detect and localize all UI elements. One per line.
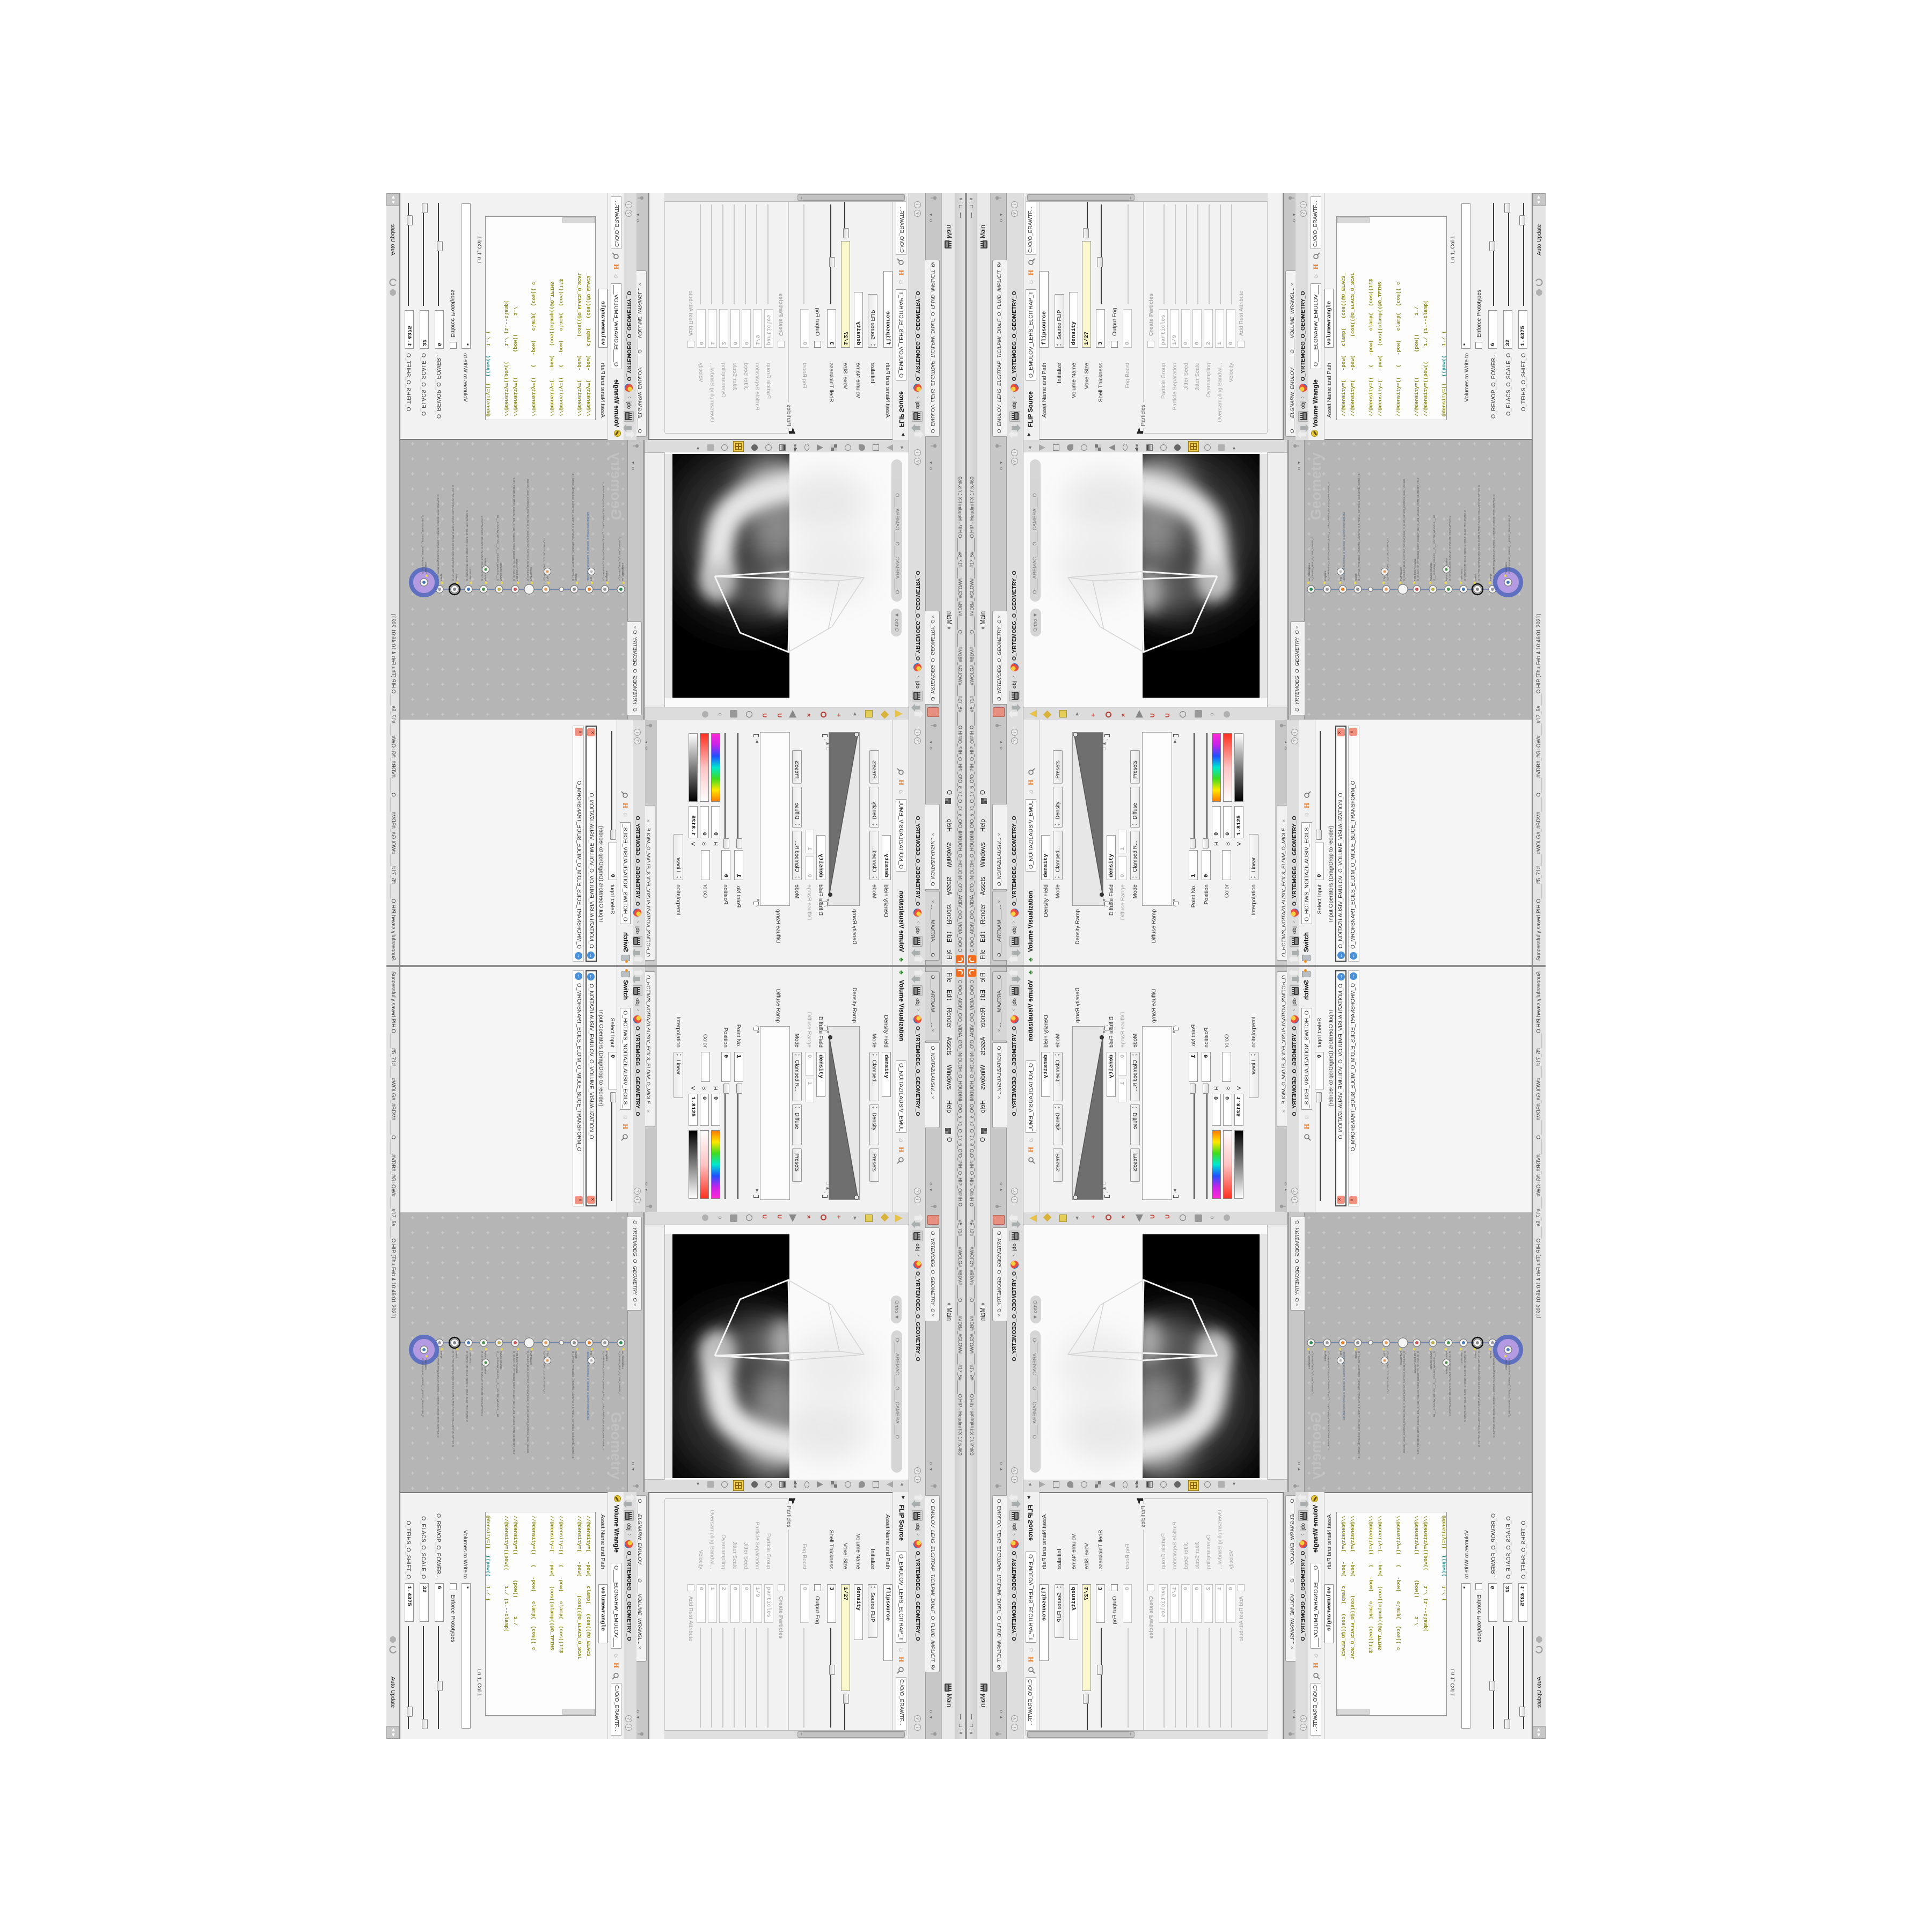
- svg-text:File: File: [1340, 576, 1342, 581]
- svg-text:an_CubeSphere: an_CubeSphere: [1308, 562, 1311, 581]
- svg-text:Switch: Switch: [1355, 573, 1357, 581]
- svg-text:O_EMULOV_LEHS_ELCITRAP_TICILPM: O_EMULOV_LEHS_ELCITRAP_TICILPMI_DIULF_O_…: [526, 1351, 529, 1453]
- svg-text:PolyWire: PolyWire: [1324, 1351, 1327, 1362]
- svg-text:O_MROFSNART_TLUSER_O_RESULT_TR: O_MROFSNART_TLUSER_O_RESULT_TRANSFORM_O: [1508, 1358, 1511, 1417]
- svg-text:O_EMARFERIW_NOGYLOP_EREHPS_EBU: O_EMARFERIW_NOGYLOP_EREHPS_EBUC_O_CUBE_S…: [1327, 1351, 1330, 1450]
- svg-text:Switch: Switch: [1474, 573, 1477, 581]
- svg-text:File: File: [590, 576, 592, 581]
- svg-text:Transform: Transform: [425, 1358, 427, 1370]
- svg-text:O_HCTIWS_NOITAZILAUSIV_ECILS_E: O_HCTIWS_NOITAZILAUSIV_ECILS_ELDIM_O_MID…: [1477, 1351, 1480, 1447]
- svg-text:Switch: Switch: [455, 1351, 458, 1359]
- svg-text:O_EREHPS_EBUC_O_CUBE_SPHERE_O: O_EREHPS_EBUC_O_CUBE_SPHERE_O: [618, 1351, 621, 1395]
- svg-text:O_EMULOV_LEHS_ELCITRAP_TICILPM: O_EMULOV_LEHS_ELCITRAP_TICILPMI_DIULF_O_…: [526, 479, 529, 581]
- svg-text:O_ECAFRUS_HTIW_EMULOV_EGREM_O_: O_ECAFRUS_HTIW_EMULOV_EGREM_O_MERGE_VOLU…: [1492, 1351, 1495, 1438]
- svg-text:Transform: Transform: [1505, 562, 1507, 574]
- svg-text:O_MROFSNART_ECILS_ELDIM_O_MIDL: O_MROFSNART_ECILS_ELDIM_O_MIDLE_SLICE_TR…: [1463, 1351, 1466, 1422]
- svg-text:O_MROFSNART_TLUSER_O_RESULT_TR: O_MROFSNART_TLUSER_O_RESULT_TRANSFORM_O: [1508, 515, 1511, 574]
- svg-text:Clip: Clip: [546, 1351, 549, 1356]
- svg-text:File: File: [590, 1351, 592, 1356]
- svg-text:Switch: Switch: [1355, 1351, 1357, 1359]
- svg-text:Volume Wrangle: Volume Wrangle: [500, 562, 502, 581]
- svg-text:O_MROFSNART_ECILS_ELDIM_O_MIDL: O_MROFSNART_ECILS_ELDIM_O_MIDLE_SLICE_TR…: [466, 510, 469, 581]
- svg-text:O___ELGNARW_EMULOV___O___VOLUM: O___ELGNARW_EMULOV___O___VOLUME_WRANGLE_…: [496, 515, 499, 581]
- svg-text:FLIP Source: FLIP Source: [1400, 567, 1402, 581]
- svg-text:FLIP Source: FLIP Source: [1400, 1351, 1402, 1365]
- svg-text:Transform: Transform: [1505, 1358, 1507, 1370]
- svg-text:O___ELGNARW_EMULOV___O___VOLUM: O___ELGNARW_EMULOV___O___VOLUME_WRANGLE_…: [1433, 1351, 1436, 1417]
- svg-text:Transform: Transform: [425, 562, 427, 574]
- svg-text:Merge: Merge: [1489, 574, 1492, 581]
- svg-text:O_EREHPS_EBUC_O_CUBE_SPHERE_O: O_EREHPS_EBUC_O_CUBE_SPHERE_O: [618, 537, 621, 581]
- svg-text:O_MROFSNART_ECILS_ELDIM_O_MIDL: O_MROFSNART_ECILS_ELDIM_O_MIDLE_SLICE_TR…: [466, 1351, 469, 1422]
- svg-text:O_ECAFRUS_HTIW_EMULOV_EGREM_O_: O_ECAFRUS_HTIW_EMULOV_EGREM_O_MERGE_VOLU…: [437, 1351, 440, 1438]
- svg-text:VDB from Polygons: VDB from Polygons: [516, 1351, 518, 1373]
- svg-text:PolyWire: PolyWire: [605, 1351, 608, 1362]
- svg-text:O_EMULOV_LEHS_ELCITRAP_TICILPM: O_EMULOV_LEHS_ELCITRAP_TICILPMI_DIULF_O_…: [1403, 479, 1406, 581]
- svg-text:PolyWire: PolyWire: [605, 570, 608, 581]
- svg-text:Merge: Merge: [1489, 1351, 1492, 1358]
- svg-text:O_MROFSNART_TLUSER_O_RESULT_TR: O_MROFSNART_TLUSER_O_RESULT_TRANSFORM_O: [421, 515, 424, 574]
- svg-text:an_CubeSphere: an_CubeSphere: [621, 1351, 624, 1370]
- svg-text:PolyWire: PolyWire: [1324, 570, 1327, 581]
- svg-text:Switch: Switch: [575, 1351, 577, 1359]
- svg-text:Switch: Switch: [455, 573, 458, 581]
- svg-text:an_CubeSphere: an_CubeSphere: [621, 562, 624, 581]
- svg-text:O_SNOGYLOP_YRTEMOEG_MORF_EMULO: O_SNOGYLOP_YRTEMOEG_MORF_EMULOV_BDV_O_VD…: [1417, 478, 1419, 581]
- svg-text:O_HCTIWS_NOITAZILAUSIV_ECILS_E: O_HCTIWS_NOITAZILAUSIV_ECILS_ELDIM_O_MID…: [1477, 485, 1480, 581]
- svg-text:Clip: Clip: [546, 576, 549, 581]
- svg-text:O_MROFSNART_ECILS_ELDIM_O_MIDL: O_MROFSNART_ECILS_ELDIM_O_MIDLE_SLICE_TR…: [1463, 510, 1466, 581]
- svg-text:O_EMULOV_LEHS_ELCITRAP_TICILPM: O_EMULOV_LEHS_ELCITRAP_TICILPMI_DIULF_O_…: [1403, 1351, 1406, 1453]
- svg-text:Volume Wrangle: Volume Wrangle: [1430, 562, 1432, 581]
- svg-text:Volume Wrangle: Volume Wrangle: [1430, 1351, 1432, 1370]
- svg-text:Switch: Switch: [1474, 1351, 1477, 1359]
- svg-text:O_ECAFRUS_HTIW_EMULOV_EGREM_O_: O_ECAFRUS_HTIW_EMULOV_EGREM_O_MERGE_VOLU…: [437, 494, 440, 581]
- svg-text:Switch: Switch: [575, 573, 577, 581]
- svg-text:O_EMARFERIW_NOGYLOP_EREHPS_EBU: O_EMARFERIW_NOGYLOP_EREHPS_EBUC_O_CUBE_S…: [1327, 482, 1330, 581]
- svg-text:FLIP Source: FLIP Source: [530, 1351, 532, 1365]
- svg-text:O_ECAFRUS_HTIW_EMULOV_EGREM_O_: O_ECAFRUS_HTIW_EMULOV_EGREM_O_MERGE_VOLU…: [1492, 494, 1495, 581]
- svg-text:O_EREHPS_EBUC_O_CUBE_SPHERE_O: O_EREHPS_EBUC_O_CUBE_SPHERE_O: [1311, 537, 1314, 581]
- svg-text:Transform: Transform: [1460, 1351, 1463, 1363]
- svg-text:FLIP Source: FLIP Source: [530, 567, 532, 581]
- svg-text:O_HCTIWS_YRTEMOEG_LANRETXE_LAN: O_HCTIWS_YRTEMOEG_LANRETXE_LANRETNI_O_IN…: [572, 1351, 574, 1459]
- svg-text:O___ELGNARW_EMULOV___O___VOLUM: O___ELGNARW_EMULOV___O___VOLUME_WRANGLE_…: [496, 1351, 499, 1417]
- svg-text:Transform: Transform: [469, 569, 472, 581]
- svg-text:Transform: Transform: [469, 1351, 472, 1363]
- svg-text:Volume Wrangle: Volume Wrangle: [500, 1351, 502, 1370]
- svg-text:Transform: Transform: [1460, 569, 1463, 581]
- svg-text:Clip: Clip: [1383, 1351, 1386, 1356]
- svg-text:Geometry: Geometry: [1308, 452, 1324, 520]
- svg-text:Merge: Merge: [440, 574, 443, 581]
- svg-text:Geometry: Geometry: [1308, 1412, 1324, 1480]
- svg-text:O_SNOGYLOP_YRTEMOEG_MORF_EMULO: O_SNOGYLOP_YRTEMOEG_MORF_EMULOV_BDV_O_VD…: [513, 1351, 515, 1454]
- svg-text:File: File: [1340, 1351, 1342, 1356]
- svg-text:VDB from Polygons: VDB from Polygons: [1414, 559, 1416, 581]
- svg-text:Geometry: Geometry: [608, 452, 624, 520]
- svg-text:O_HCTIWS_YRTEMOEG_LANRETXE_LAN: O_HCTIWS_YRTEMOEG_LANRETXE_LANRETNI_O_IN…: [1358, 473, 1360, 581]
- svg-text:O_EREHPS_EBUC_O_CUBE_SPHERE_O: O_EREHPS_EBUC_O_CUBE_SPHERE_O: [1311, 1351, 1314, 1395]
- svg-text:O_EMARFERIW_NOGYLOP_EREHPS_EBU: O_EMARFERIW_NOGYLOP_EREHPS_EBUC_O_CUBE_S…: [602, 482, 605, 581]
- svg-text:Clip: Clip: [1383, 576, 1386, 581]
- svg-text:VDB from Polygons: VDB from Polygons: [1414, 1351, 1416, 1373]
- svg-text:O_HCTIWS_NOITAZILAUSIV_ECILS_E: O_HCTIWS_NOITAZILAUSIV_ECILS_ELDIM_O_MID…: [452, 1351, 455, 1447]
- svg-text:O_HCTIWS_NOITAZILAUSIV_ECILS_E: O_HCTIWS_NOITAZILAUSIV_ECILS_ELDIM_O_MID…: [452, 485, 455, 581]
- svg-text:an_CubeSphere: an_CubeSphere: [1308, 1351, 1311, 1370]
- svg-text:O___ELGNARW_EMULOV___O___VOLUM: O___ELGNARW_EMULOV___O___VOLUME_WRANGLE_…: [1433, 515, 1436, 581]
- svg-text:Geometry: Geometry: [608, 1412, 624, 1480]
- svg-text:O_SNOGYLOP_YRTEMOEG_MORF_EMULO: O_SNOGYLOP_YRTEMOEG_MORF_EMULOV_BDV_O_VD…: [1417, 1351, 1419, 1454]
- svg-text:O_MROFSNART_TLUSER_O_RESULT_TR: O_MROFSNART_TLUSER_O_RESULT_TRANSFORM_O: [421, 1358, 424, 1417]
- svg-text:O_HCTIWS_YRTEMOEG_LANRETXE_LAN: O_HCTIWS_YRTEMOEG_LANRETXE_LANRETNI_O_IN…: [572, 473, 574, 581]
- svg-text:O_SNOGYLOP_YRTEMOEG_MORF_EMULO: O_SNOGYLOP_YRTEMOEG_MORF_EMULOV_BDV_O_VD…: [513, 478, 515, 581]
- svg-text:O_HCTIWS_YRTEMOEG_LANRETXE_LAN: O_HCTIWS_YRTEMOEG_LANRETXE_LANRETNI_O_IN…: [1358, 1351, 1360, 1459]
- svg-text:Merge: Merge: [440, 1351, 443, 1358]
- svg-text:O_EMARFERIW_NOGYLOP_EREHPS_EBU: O_EMARFERIW_NOGYLOP_EREHPS_EBUC_O_CUBE_S…: [602, 1351, 605, 1450]
- svg-text:VDB from Polygons: VDB from Polygons: [516, 559, 518, 581]
